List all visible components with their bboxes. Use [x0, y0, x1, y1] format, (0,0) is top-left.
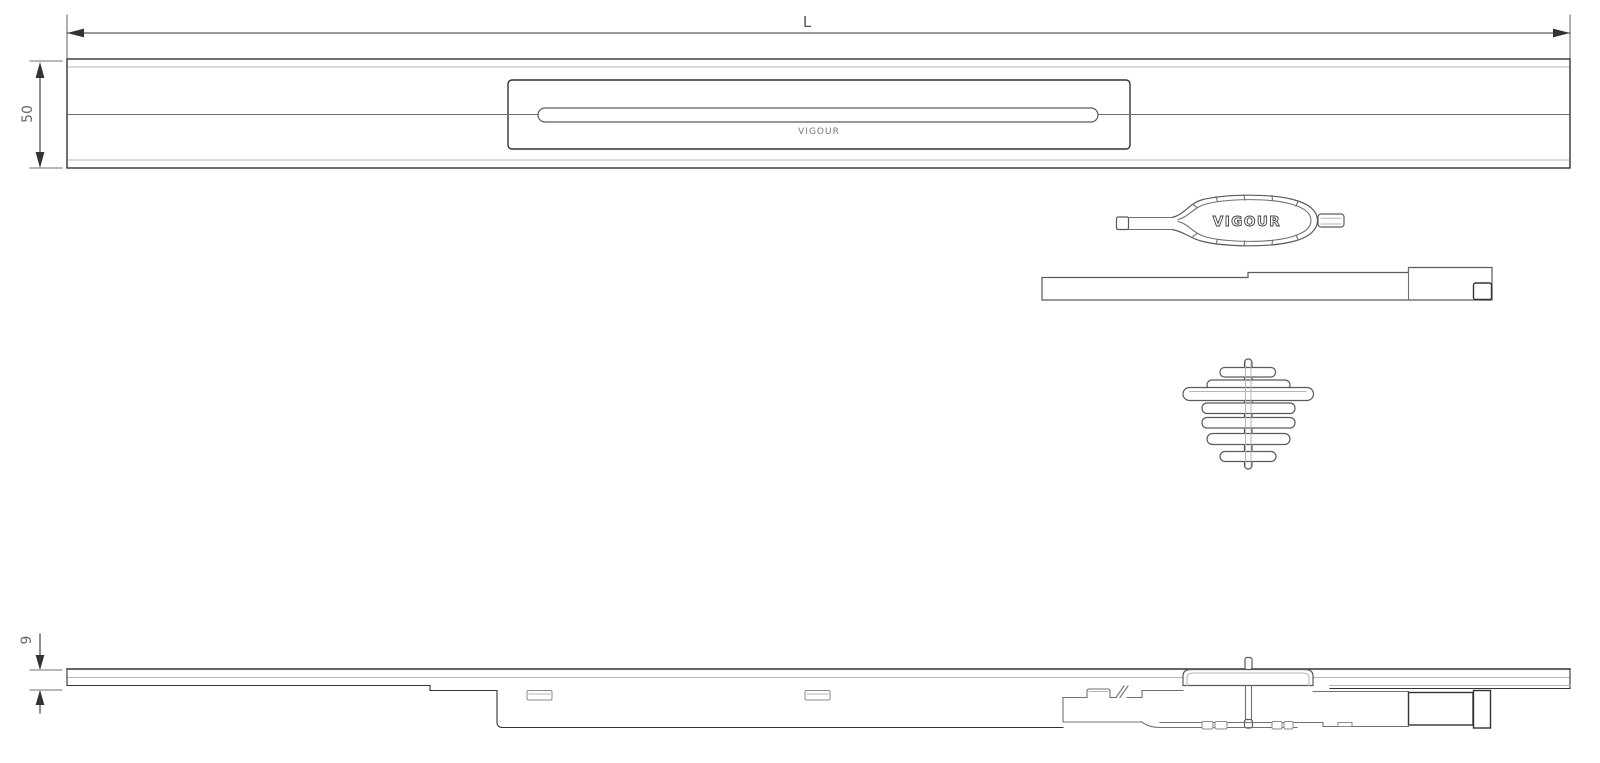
key-pin — [1318, 214, 1344, 227]
outlet-block — [1409, 693, 1474, 726]
outlet-end-block — [1474, 691, 1491, 729]
height-arrow-top — [36, 655, 45, 670]
extension-bar — [1042, 268, 1492, 301]
cover-brand-text: VIGOUR — [798, 127, 840, 137]
base-tab — [1338, 723, 1352, 727]
key-tip — [1117, 217, 1129, 230]
strainer-bar-wide — [1183, 388, 1314, 401]
extension-bar-notch — [1474, 283, 1492, 300]
width-label: 50 — [20, 105, 36, 123]
height-dimension: 9 — [19, 634, 62, 713]
channel-body-plan: VIGOUR — [67, 59, 1570, 168]
length-arrow-left — [67, 29, 84, 38]
mounting-clip-2 — [805, 691, 830, 701]
strainer-rib-3 — [1272, 722, 1282, 730]
strainer-stem-side — [1246, 686, 1252, 721]
siphon-housing — [1063, 698, 1142, 723]
width-arrow-top — [36, 62, 45, 78]
trough-body — [497, 691, 1063, 728]
base-step-line — [1323, 723, 1409, 727]
height-extension-lines — [30, 670, 62, 690]
key-brand-text: VIGOUR — [1213, 214, 1281, 230]
strainer-bar-1 — [1220, 368, 1276, 378]
shower-channel-drawing: L 50 VIGOUR VIGOUR — [0, 0, 1600, 763]
flange-profile — [67, 669, 1570, 691]
service-key: VIGOUR — [1117, 195, 1345, 246]
extension-bar-outline — [1042, 268, 1492, 301]
width-arrow-bottom — [36, 152, 45, 168]
drain-assembly — [1063, 658, 1491, 730]
strainer-rib-2 — [1215, 722, 1227, 730]
side-view: 9 — [19, 634, 1570, 729]
strainer-dome-side — [1183, 670, 1313, 686]
length-label: L — [803, 13, 812, 31]
strainer-bar-5 — [1202, 418, 1295, 429]
height-arrow-bottom — [36, 690, 45, 705]
housing-lever — [1116, 686, 1128, 698]
housing-tab — [1087, 689, 1110, 698]
mounting-clip-1 — [527, 691, 552, 701]
flange-bottom-edge-left — [67, 669, 497, 691]
hair-strainer — [1183, 359, 1314, 469]
strainer-stem-cap — [1245, 658, 1252, 670]
strainer-stem-foot — [1245, 720, 1253, 729]
drain-slot — [538, 108, 1098, 122]
strainer-rib-1 — [1202, 722, 1213, 730]
length-extension-lines — [67, 15, 1570, 58]
height-label: 9 — [19, 636, 35, 645]
strainer-bar-7 — [1220, 452, 1276, 462]
plan-view: L 50 VIGOUR — [20, 13, 1570, 168]
trough-outline — [497, 691, 1063, 728]
strainer-base-lines — [1160, 723, 1323, 728]
strainer-rib-4 — [1284, 722, 1293, 730]
strainer-bar-4 — [1202, 403, 1295, 414]
length-arrow-right — [1553, 29, 1570, 38]
width-dimension: 50 — [20, 61, 62, 168]
technical-drawing-page: L 50 VIGOUR VIGOUR — [0, 0, 1600, 763]
key-stem — [1129, 218, 1173, 230]
strainer-bar-6 — [1207, 434, 1290, 445]
length-dimension: L — [67, 13, 1570, 58]
